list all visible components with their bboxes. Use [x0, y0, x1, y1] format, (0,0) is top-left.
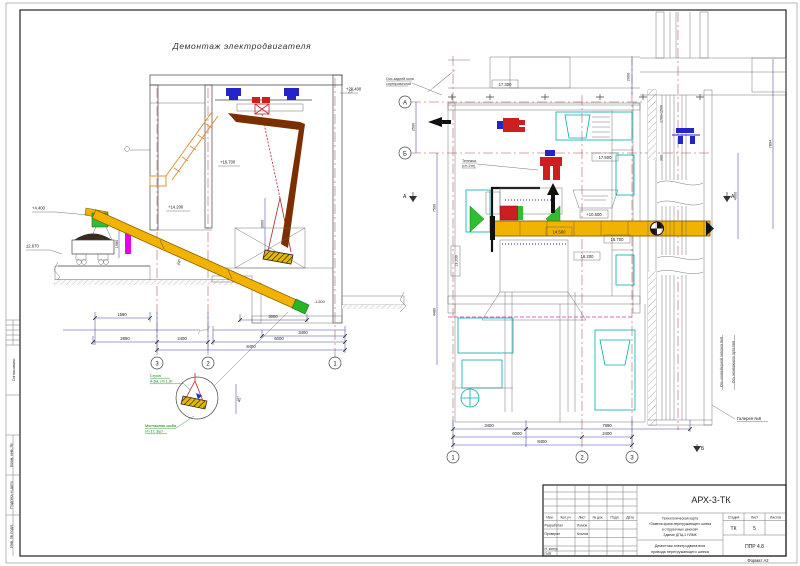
beam-plan — [490, 216, 714, 240]
dim-label: 1700×1500 — [660, 105, 664, 123]
dim-label: 7894 — [769, 140, 773, 148]
shackle-icon — [196, 393, 202, 400]
move-arrows — [428, 117, 559, 213]
grid-bubble-label: 3 — [155, 362, 159, 368]
detail-callout-strop: Строп 4-3м, г/п 1,0т — [150, 374, 190, 390]
tb-header-cell: Изм. — [546, 516, 553, 520]
note-text: Ось задней коли — [386, 77, 414, 81]
boom-conveyor — [92, 210, 309, 314]
dim-label: 3000 — [268, 314, 278, 319]
plan-bottom-rooms — [455, 304, 645, 422]
elevation-label: -1.500 — [314, 300, 325, 304]
callout-text: 4-3м, г/п 1,0т — [150, 380, 173, 384]
angle-label: 45° — [237, 396, 242, 403]
electric-motor-load — [263, 250, 293, 264]
dim-label: 7890 — [602, 423, 612, 428]
dim-label: 2500 — [412, 123, 416, 131]
tb-role: Разработал — [545, 524, 563, 528]
tb-project-line: Здание ДПЦ-1 НЛМК — [663, 533, 696, 537]
tb-header-cell: № док. — [593, 516, 604, 520]
section-grid-bubbles: 3 2 1 — [151, 357, 341, 369]
dim-label: 4480 — [433, 308, 437, 316]
tb-sheets-label: Листов — [770, 516, 781, 520]
tb-stage-value: ТК — [731, 526, 737, 532]
elevation-label: +20.400 — [346, 87, 362, 92]
tb-stage-label: Стадия — [728, 516, 740, 520]
dim-label: 6000 — [512, 431, 522, 436]
doc-number: АРХ-3-ТК — [691, 495, 731, 505]
dim-label: 3000 — [261, 220, 265, 228]
elevation-label: 16.200 — [581, 254, 594, 259]
title-block: АРХ-3-ТК Изм. Кол.уч. Лист № док. Подп. … — [543, 485, 786, 556]
elevation-label: +16.700 — [220, 160, 236, 165]
plan-top-structure — [428, 57, 704, 105]
stamp-inv: Инв. № подл. — [10, 524, 14, 548]
plan-dimensions: 2500 7500 4480 2000 1700×1500 300 4000 7… — [412, 58, 774, 447]
stamp-podpis: Подпись и дата — [10, 480, 14, 508]
callout-text: Монтажная скоба — [145, 424, 177, 428]
note-text: сортировочной — [386, 82, 411, 86]
callout-text: г/п 1т, 3шт — [145, 430, 163, 434]
tb-project-line: и отгрузочных шнеков» — [662, 528, 699, 532]
tb-header-cell: Подп. — [610, 516, 619, 520]
elevation-label: ±2.670 — [26, 244, 39, 249]
g gallery-labels: Галерея №6 Ось конвейерной галереи №6 Ос… — [712, 335, 768, 422]
label-text: Тележка — [462, 159, 476, 163]
plan-elevation-boxes: 17.300 17.500 +10.500 14.500 16.700 16.2… — [451, 80, 630, 276]
detail-callout-skoba: Монтажная скоба г/п 1т, 3шт — [145, 416, 194, 434]
elevation-label: +4.400 — [32, 206, 46, 211]
dim-label: 3400 — [298, 330, 308, 335]
section-title: Демонтаж электродвигателя — [172, 41, 311, 51]
grid-bubble-label: 2 — [580, 456, 584, 462]
elevation-label: +14.200 — [168, 205, 184, 210]
dim-label: 300 — [660, 155, 664, 161]
callout-text: Строп — [150, 374, 161, 378]
tb-role: ГИП — [545, 552, 552, 556]
grid-bubble-label: 1 — [333, 362, 337, 368]
wagon — [58, 234, 150, 267]
tb-header-cell: Дата — [626, 516, 634, 520]
tb-title-line: Демонтаж электродвигателя — [655, 544, 705, 548]
stamp-vzam: Взам. инв. № — [10, 443, 14, 467]
tb-sheet-label: Лист — [751, 516, 759, 520]
dim-label: 8400 — [246, 344, 256, 349]
label-text: (г/п 2тн) — [462, 164, 475, 168]
tb-role: Н. контр. — [545, 547, 559, 551]
tb-name: Ломов — [577, 524, 587, 528]
grid-bubble-label: Б — [403, 152, 407, 158]
dim-label: 2400 — [177, 336, 187, 341]
coupling-green-left — [470, 206, 484, 232]
tb-header-cell: Кол.уч. — [560, 516, 571, 520]
machine-section — [235, 228, 305, 268]
angle-label: 24° — [175, 258, 182, 266]
tb-name: Козлов — [577, 532, 588, 536]
dim-ticks — [91, 316, 347, 352]
elevation-label: 14.500 — [553, 230, 566, 235]
motor-plan-red — [500, 206, 518, 220]
tb-title-line: привода перегружающего шнека — [651, 550, 710, 554]
gallery-label: Галерея №6 — [737, 416, 762, 421]
left-stamp: Согласовано Взам. инв. № Подпись и дата … — [6, 320, 20, 556]
tb-sheet-value: 5 — [753, 526, 756, 532]
axis-label: Ось конвейерной галереи №6 — [720, 337, 724, 387]
dim-label: 2400 — [602, 431, 612, 436]
drawing-sheet: Согласовано Взам. инв. № Подпись и дата … — [0, 0, 800, 566]
elevation-label: 13.200 — [455, 255, 459, 267]
dim-label: 8400 — [537, 439, 547, 444]
cut-label: Б — [701, 446, 705, 452]
tb-project-line: «Замена крана перегружающего шнека — [649, 522, 711, 526]
dim-label: 1580 — [117, 312, 127, 317]
grid-bubble-label: 2 — [206, 362, 210, 368]
tb-header-cell: Лист — [578, 516, 586, 520]
hook-symbol — [651, 222, 664, 235]
axis-note: Ось задней коли сортировочной — [386, 77, 442, 95]
format-label: Формат А2 — [747, 558, 769, 563]
plan-room-trapezoid — [573, 190, 618, 208]
elevation-label: 17.300 — [499, 82, 512, 87]
tb-project-line: Технологическая карта — [662, 517, 698, 521]
dim-label: 2000 — [627, 73, 631, 81]
tb-doc-code: ППР 4.8 — [745, 544, 764, 550]
dim-label: 6000 — [274, 336, 284, 341]
dim-label: 7500 — [433, 204, 437, 212]
section-view: Демонтаж электродвигателя — [26, 41, 406, 434]
elevation-label: 16.700 — [611, 237, 624, 242]
elevation-label: +10.500 — [586, 212, 602, 217]
dim-label: 3400 — [484, 423, 494, 428]
section-elevations: +20.400 +16.700 +14.200 +4.400 ±2.670 -1… — [26, 87, 362, 305]
chute — [228, 113, 305, 248]
grid-bubble-label: 1 — [451, 456, 455, 462]
plan-view: Тележка (г/п 2тн) Ось задней коли сортир… — [386, 12, 786, 463]
elevation-label: 17.500 — [599, 155, 612, 160]
grid-bubble-label: А — [403, 101, 407, 107]
plan-grid-bubbles: 1 2 3 А Б — [399, 96, 638, 463]
hoist-figure-mid — [540, 150, 562, 180]
dim-label: 1980 — [115, 240, 119, 248]
dim-label: 2890 — [120, 336, 130, 341]
stamp-soglasovano: Согласовано — [12, 359, 16, 382]
cut-label: А — [403, 194, 407, 200]
axis-label: Ось монтажного пути №6 — [732, 341, 736, 383]
hoist-figure-top — [497, 118, 525, 132]
grid-bubble-label: 3 — [630, 456, 634, 462]
tb-role: Проверил — [545, 532, 561, 536]
conveyor-gallery — [640, 12, 786, 425]
hoist-label: Тележка (г/п 2тн) — [462, 159, 538, 170]
